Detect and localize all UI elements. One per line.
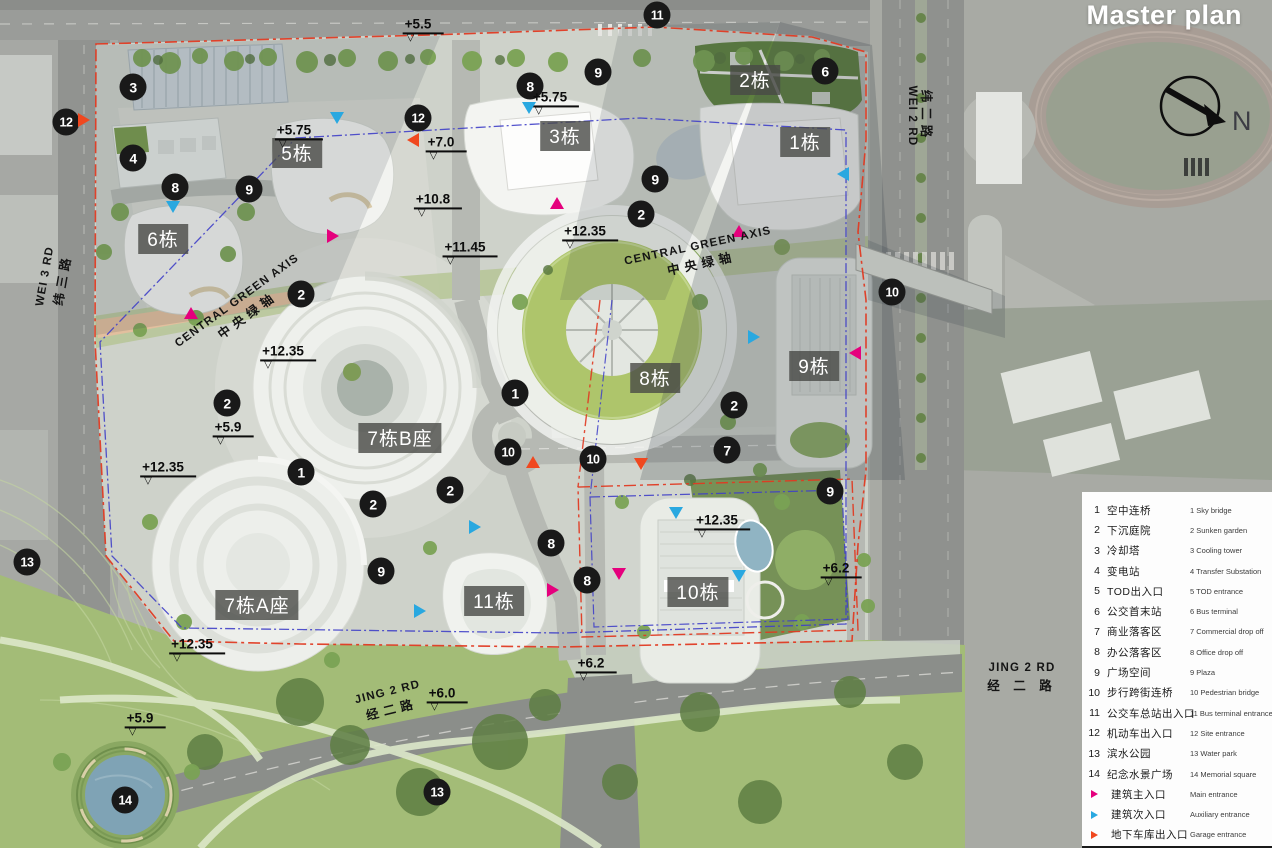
legend-item-8: 8办公落客区8 Office drop off [1082,642,1272,662]
legend-item-zh: 变电站 [1107,564,1140,579]
master-plan-slide: 3124891289116922102122110102798891314135… [0,0,1272,848]
elevation-marker: +5.5▽ [403,17,444,34]
legend-entrance-en: Main entrance [1190,790,1238,799]
elevation-marker: +12.35▽ [169,637,225,654]
entrance-triangle-aux-icon [837,167,849,181]
elevation-marker: +5.75▽ [531,90,579,107]
elevation-marker: +6.2▽ [576,656,617,673]
legend-item-7: 7商业落客区7 Commercial drop off [1082,622,1272,642]
building-label-3: 2栋 [730,65,780,95]
elevation-marker: +12.35▽ [562,224,618,241]
legend-entrance-garage: 地下车库出入口Garage entrance [1082,825,1272,845]
elevation-marker: +12.35▽ [140,460,196,477]
legend-item-zh: TOD出入口 [1107,584,1163,599]
legend-item-zh: 机动车出入口 [1107,726,1173,741]
legend-item-9: 9广场空间9 Plaza [1082,662,1272,682]
entrance-triangle-aux-icon [166,201,180,213]
elevation-datum-icon: ▽ [430,151,438,161]
plan-marker-12: 12 [405,105,432,132]
elevation-datum-icon: ▽ [431,702,439,712]
plan-marker-4: 4 [120,145,147,172]
legend-item-en: 8 Office drop off [1190,648,1243,657]
road-label: WEI 3 RD纬三路 [34,245,76,310]
legend-item-zh: 广场空间 [1107,665,1151,680]
building-label-6: 9栋 [789,351,839,381]
entrance-triangle-main-icon [327,229,339,243]
elevation-datum-icon: ▽ [279,139,287,149]
entrance-triangle-garage-icon [526,456,540,468]
road-label: 纬二路WEI 2 RD [906,86,938,147]
legend-item-zh: 公交首末站 [1107,604,1162,619]
legend-item-number: 7 [1082,626,1100,638]
legend-item-en: 10 Pedestrian bridge [1190,688,1259,697]
entrance-triangle-main-icon [547,583,559,597]
building-label-10: 10栋 [667,577,728,607]
road-label-line: JING 2 RD [987,662,1056,674]
legend-entrance-en: Auxiliary entrance [1190,810,1250,819]
road-label-line: 经 二 路 [987,675,1056,694]
axis-label-line: CENTRAL GREEN AXIS [173,252,301,350]
elevation-marker: +12.35▽ [260,344,316,361]
legend-item-zh: 冷却塔 [1107,543,1140,558]
elevation-datum-icon: ▽ [418,208,426,218]
legend-item-en: 9 Plaza [1190,668,1215,677]
legend-item-en: 14 Memorial square [1190,770,1256,779]
entrance-triangle-garage-icon [1091,831,1102,839]
plan-marker-9: 9 [368,558,395,585]
legend-entrance-en: Garage entrance [1190,830,1246,839]
legend-item-number: 13 [1082,748,1100,760]
entrance-triangle-main-icon [1091,790,1102,798]
elevation-marker: +12.35▽ [694,513,750,530]
plan-marker-9: 9 [642,166,669,193]
plan-marker-10: 10 [879,279,906,306]
elevation-datum-icon: ▽ [144,476,152,486]
legend-item-number: 9 [1082,667,1100,679]
legend-item-number: 12 [1082,727,1100,739]
building-label-2: 3栋 [540,121,590,151]
legend-item-en: 7 Commercial drop off [1190,627,1264,636]
elevation-marker: +11.45▽ [443,240,498,257]
plan-marker-3: 3 [120,74,147,101]
legend-entrance-aux: 建筑次入口Auxiliary entrance [1082,804,1272,824]
elevation-datum-icon: ▽ [566,240,574,250]
elevation-marker: +10.8▽ [414,192,462,209]
legend-item-6: 6公交首末站6 Bus terminal [1082,601,1272,621]
building-label-7: 7栋B座 [358,423,441,453]
elevation-datum-icon: ▽ [580,672,588,682]
legend-item-zh: 公交车总站出入口 [1107,706,1195,721]
legend-item-zh: 步行跨街连桥 [1107,685,1173,700]
legend-item-zh: 空中连桥 [1107,503,1151,518]
axis-label: CENTRAL GREEN AXIS中央绿轴 [623,225,776,287]
elevation-datum-icon: ▽ [264,360,272,370]
plan-marker-10: 10 [495,439,522,466]
building-label-1: 6栋 [138,224,188,254]
legend-item-12: 12机动车出入口12 Site entrance [1082,723,1272,743]
plan-marker-6: 6 [812,58,839,85]
road-label-line: WEI 2 RD [906,86,918,147]
legend-item-zh: 办公落客区 [1107,645,1162,660]
legend-entrance-zh: 建筑主入口 [1111,787,1166,802]
plan-marker-2: 2 [437,477,464,504]
plan-marker-13: 13 [424,779,451,806]
legend-item-3: 3冷却塔3 Cooling tower [1082,541,1272,561]
page-title: Master plan [1086,0,1242,31]
plan-marker-11: 11 [644,2,671,29]
legend-item-number: 8 [1082,646,1100,658]
entrance-triangle-main-icon [849,346,861,360]
compass: N [1148,62,1268,154]
legend-item-en: 12 Site entrance [1190,729,1245,738]
entrance-triangle-aux-icon [522,102,536,114]
entrance-triangle-aux-icon [1091,811,1102,819]
plan-marker-8: 8 [574,567,601,594]
legend-list: 1空中连桥1 Sky bridge2下沉庭院2 Sunken garden3冷却… [1082,500,1272,845]
legend-item-number: 5 [1082,585,1100,597]
entrance-triangle-aux-icon [748,330,760,344]
legend-item-en: 6 Bus terminal [1190,607,1238,616]
legend-panel: 1空中连桥1 Sky bridge2下沉庭院2 Sunken garden3冷却… [1082,492,1272,848]
north-arrow-icon [1161,77,1226,135]
entrance-triangle-aux-icon [330,112,344,124]
plan-marker-2: 2 [360,491,387,518]
plan-marker-9: 9 [585,59,612,86]
elevation-marker: +7.0▽ [426,135,467,152]
plan-marker-7: 7 [714,437,741,464]
legend-item-number: 6 [1082,606,1100,618]
plan-marker-13: 13 [14,549,41,576]
legend-item-en: 1 Sky bridge [1190,506,1232,515]
legend-item-en: 3 Cooling tower [1190,546,1242,555]
plan-marker-9: 9 [236,176,263,203]
legend-item-10: 10步行跨街连桥10 Pedestrian bridge [1082,683,1272,703]
legend-item-zh: 下沉庭院 [1107,523,1151,538]
entrance-triangle-aux-icon [414,604,426,618]
legend-entrance-zh: 建筑次入口 [1111,807,1166,822]
entrance-triangle-aux-icon [669,507,683,519]
legend-item-en: 13 Water park [1190,749,1237,758]
legend-item-number: 1 [1082,504,1100,516]
plan-marker-2: 2 [721,392,748,419]
legend-item-number: 11 [1082,707,1100,719]
entrance-triangle-garage-icon [634,458,648,470]
legend-item-zh: 滨水公园 [1107,746,1151,761]
elevation-datum-icon: ▽ [129,727,137,737]
legend-item-number: 3 [1082,545,1100,557]
plan-marker-2: 2 [214,390,241,417]
building-label-5: 8栋 [630,363,680,393]
elevation-marker: +6.0▽ [427,686,468,703]
legend-item-en: 5 TOD entrance [1190,587,1243,596]
building-label-4: 1栋 [780,127,830,157]
legend-item-5: 5TOD出入口5 TOD entrance [1082,581,1272,601]
legend-item-number: 10 [1082,687,1100,699]
legend-item-14: 14纪念水景广场14 Memorial square [1082,764,1272,784]
plan-marker-1: 1 [288,459,315,486]
building-label-8: 7栋A座 [215,590,298,620]
elevation-datum-icon: ▽ [535,106,543,116]
entrance-triangle-main-icon [612,568,626,580]
elevation-datum-icon: ▽ [217,436,225,446]
plan-marker-8: 8 [538,530,565,557]
elevation-marker: +5.75▽ [275,123,323,140]
legend-item-11: 11公交车总站出入口11 Bus terminal entrance [1082,703,1272,723]
legend-item-en: 11 Bus terminal entrance [1190,709,1272,718]
legend-entrance-main: 建筑主入口Main entrance [1082,784,1272,804]
legend-item-zh: 纪念水景广场 [1107,767,1173,782]
legend-item-1: 1空中连桥1 Sky bridge [1082,500,1272,520]
legend-entrance-zh: 地下车库出入口 [1111,827,1188,842]
legend-item-number: 14 [1082,768,1100,780]
elevation-datum-icon: ▽ [698,529,706,539]
entrance-triangle-aux-icon [469,520,481,534]
entrance-triangle-garage-icon [78,113,90,127]
plan-marker-9: 9 [817,478,844,505]
entrance-triangle-garage-icon [407,133,419,147]
legend-item-13: 13滨水公园13 Water park [1082,744,1272,764]
elevation-marker: +6.2▽ [821,561,862,578]
building-label-9: 11栋 [464,586,524,616]
road-label: JING 2 RD经 二 路 [987,662,1056,694]
legend-item-zh: 商业落客区 [1107,624,1162,639]
legend-item-number: 4 [1082,565,1100,577]
legend-item-number: 2 [1082,524,1100,536]
entrance-triangle-aux-icon [732,570,746,582]
elevation-datum-icon: ▽ [407,33,415,43]
entrance-triangle-main-icon [184,307,198,319]
north-label: N [1232,106,1252,136]
road-label-line: 纬二路 [918,86,937,147]
elevation-datum-icon: ▽ [825,577,833,587]
legend-item-en: 2 Sunken garden [1190,526,1247,535]
legend-item-4: 4变电站4 Transfer Substation [1082,561,1272,581]
plan-marker-14: 14 [112,787,139,814]
plan-marker-2: 2 [628,201,655,228]
elevation-marker: +5.9▽ [213,420,254,437]
legend-item-en: 4 Transfer Substation [1190,567,1261,576]
plan-marker-1: 1 [502,380,529,407]
elevation-datum-icon: ▽ [447,256,455,266]
elevation-marker: +5.9▽ [125,711,166,728]
plan-marker-8: 8 [162,174,189,201]
plan-marker-10: 10 [580,446,607,473]
elevation-datum-icon: ▽ [173,653,181,663]
entrance-triangle-main-icon [550,197,564,209]
road-label: JING 2 RD经二路 [354,678,427,725]
plan-marker-12: 12 [53,109,80,136]
legend-item-2: 2下沉庭院2 Sunken garden [1082,520,1272,540]
